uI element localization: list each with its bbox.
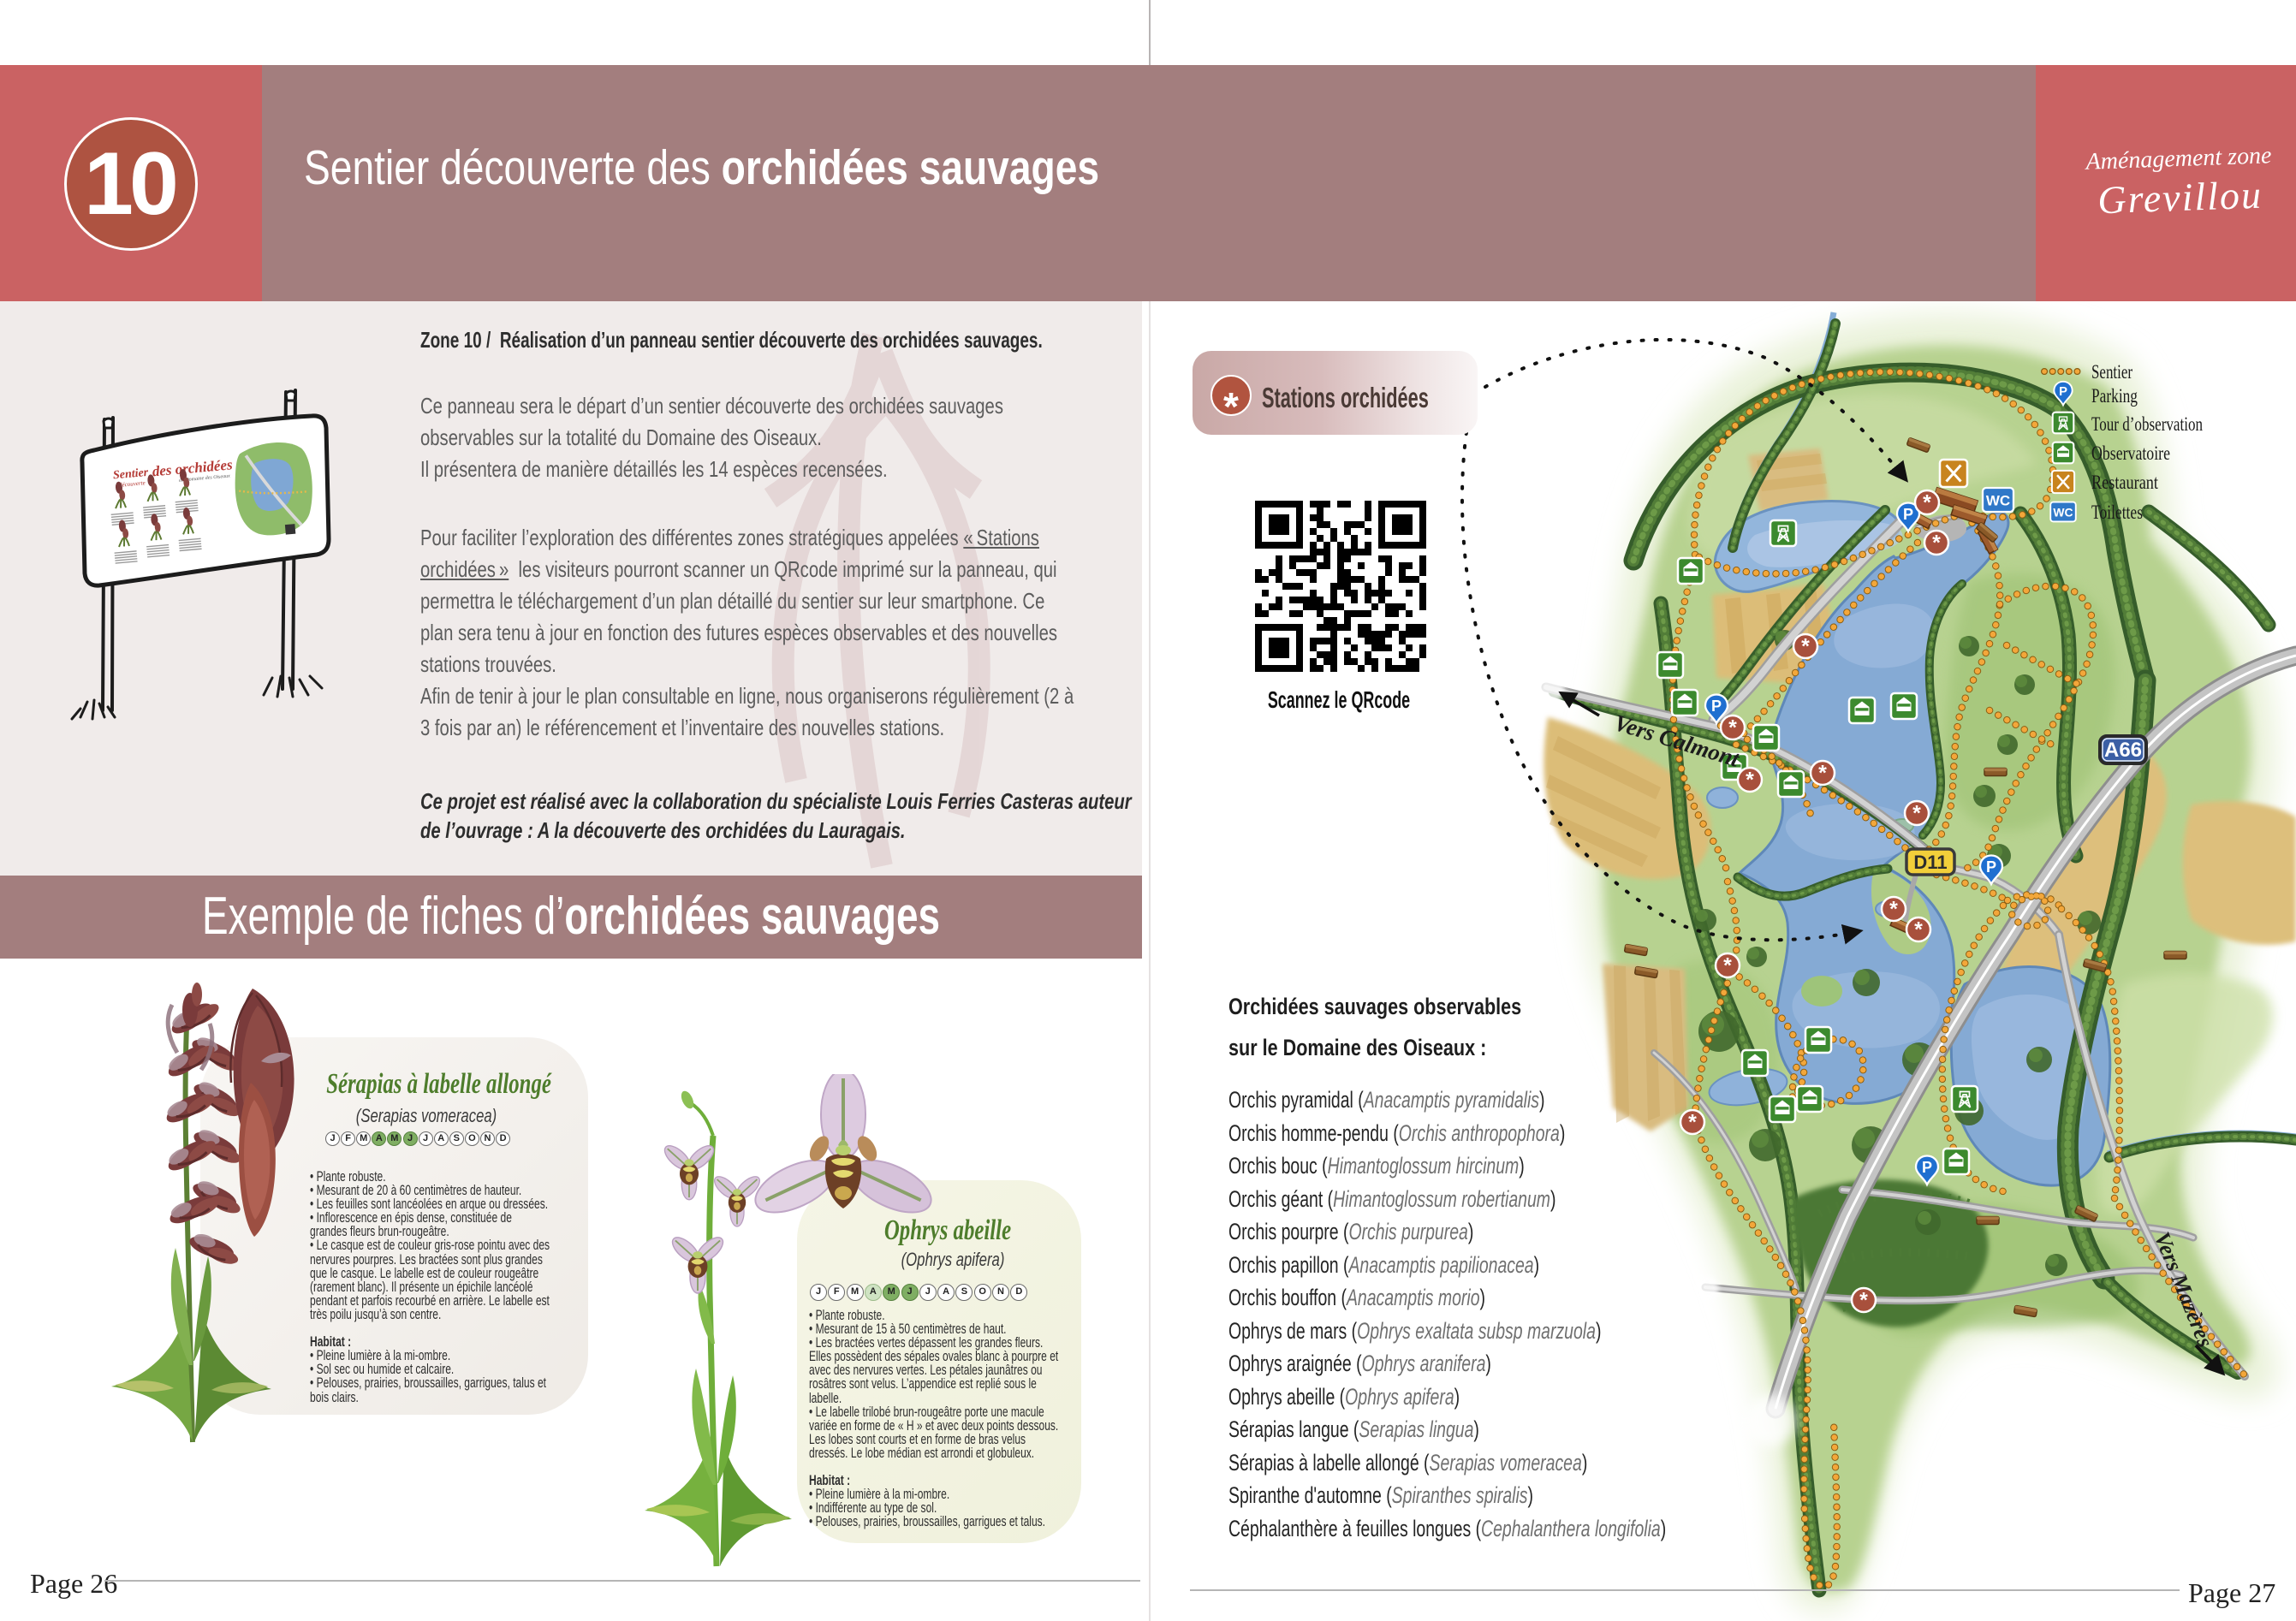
svg-text:P: P — [1903, 506, 1913, 523]
svg-text:Tour d’observation: Tour d’observation — [2091, 413, 2203, 435]
svg-text:P: P — [1711, 698, 1722, 715]
svg-text:P: P — [1986, 858, 1996, 876]
svg-text:*: * — [1818, 762, 1827, 786]
svg-text:*: * — [1801, 635, 1810, 659]
svg-text:*: * — [1912, 802, 1921, 826]
svg-text:P: P — [2059, 385, 2067, 399]
svg-text:*: * — [1688, 1111, 1697, 1135]
svg-text:WC: WC — [1986, 493, 2010, 509]
svg-text:D11: D11 — [1913, 852, 1947, 873]
svg-text:*: * — [1723, 954, 1732, 978]
svg-text:*: * — [1889, 898, 1898, 922]
svg-text:Toilettes: Toilettes — [2091, 502, 2143, 523]
svg-text:*: * — [1914, 918, 1923, 942]
svg-text:Vers Mazères: Vers Mazères — [2150, 1228, 2218, 1351]
svg-text:P: P — [1922, 1159, 1932, 1176]
svg-text:A66: A66 — [2104, 739, 2142, 762]
svg-text:*: * — [1923, 491, 1931, 515]
svg-text:Restaurant: Restaurant — [2091, 472, 2158, 493]
svg-text:Sentier: Sentier — [2091, 361, 2132, 383]
svg-text:*: * — [1932, 531, 1941, 555]
svg-text:Parking: Parking — [2091, 385, 2138, 407]
svg-text:*: * — [1746, 769, 1754, 793]
svg-text:WC: WC — [2053, 505, 2073, 519]
svg-text:Observatoire: Observatoire — [2091, 442, 2170, 464]
svg-text:*: * — [1859, 1289, 1868, 1313]
svg-text:*: * — [1728, 716, 1737, 740]
